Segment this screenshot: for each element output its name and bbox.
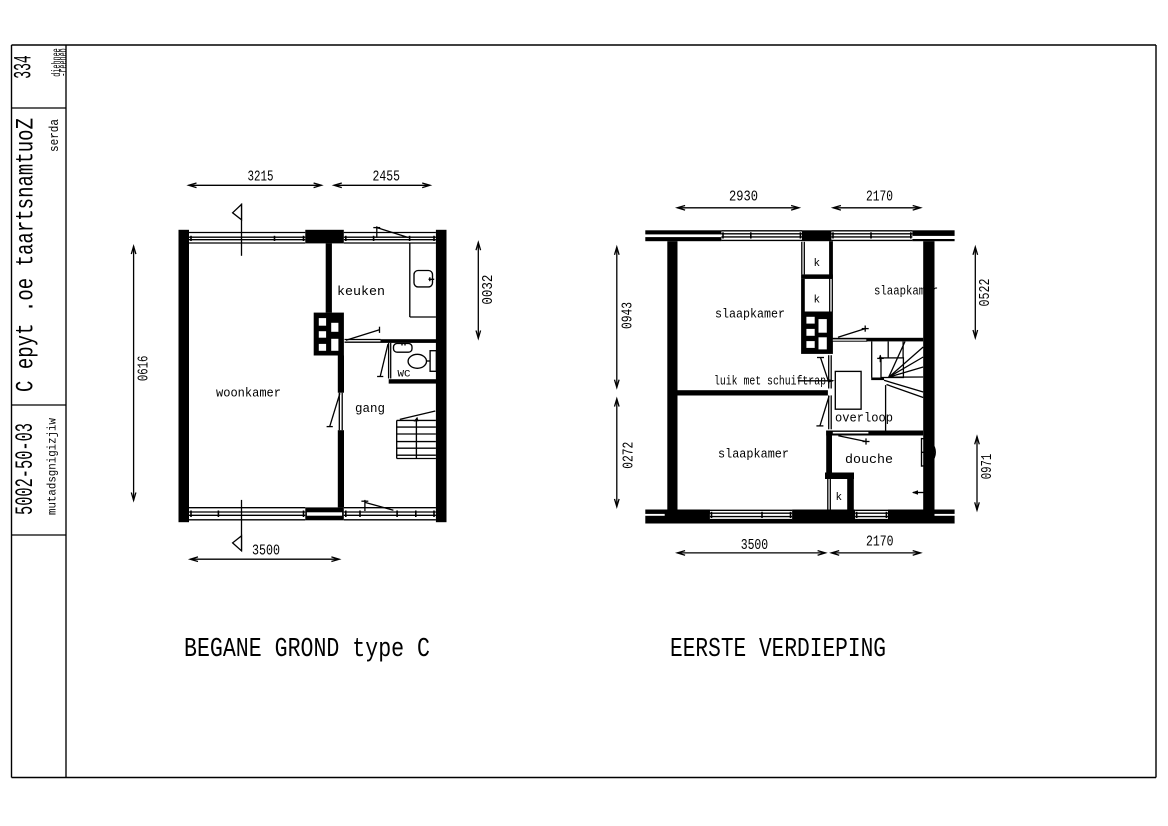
svg-text:3215: 3215 <box>248 168 274 185</box>
svg-text:k: k <box>814 295 821 307</box>
svg-text:k: k <box>814 258 821 270</box>
svg-text:0522: 0522 <box>977 279 994 307</box>
svg-text:3500: 3500 <box>741 537 769 554</box>
svg-text:douche: douche <box>845 452 893 467</box>
svg-text:BEGANE GROND type C: BEGANE GROND type C <box>184 635 430 665</box>
svg-text:2170: 2170 <box>866 189 893 206</box>
svg-text:0971: 0971 <box>979 454 996 480</box>
svg-text:0272: 0272 <box>621 442 638 469</box>
svg-text:woonkamer: woonkamer <box>216 386 281 401</box>
svg-text:2455: 2455 <box>373 168 401 185</box>
svg-text:keuken: keuken <box>337 284 385 299</box>
svg-text:gang: gang <box>355 401 385 416</box>
svg-text:2930: 2930 <box>729 189 758 206</box>
svg-text:334: 334 <box>10 55 39 79</box>
svg-text:WC: WC <box>398 370 411 381</box>
svg-text:slaapkamer: slaapkamer <box>715 307 785 322</box>
svg-text:slaapkamer: slaapkamer <box>874 284 938 299</box>
svg-text:overloop: overloop <box>835 411 893 426</box>
svg-text:3500: 3500 <box>252 542 280 559</box>
svg-text:luik met schuiftrap: luik met schuiftrap <box>714 374 826 389</box>
svg-text:5002-50-03: 5002-50-03 <box>11 423 40 515</box>
svg-text:0616: 0616 <box>136 356 153 382</box>
svg-text:0943: 0943 <box>620 302 637 329</box>
svg-text:slaapkamer: slaapkamer <box>718 447 789 462</box>
svg-text:serda: serda <box>48 119 62 152</box>
svg-text:2170: 2170 <box>866 534 894 551</box>
svg-text:k: k <box>836 492 843 504</box>
svg-text:EERSTE VERDIEPING: EERSTE VERDIEPING <box>670 635 886 665</box>
svg-text:0032: 0032 <box>480 275 497 305</box>
svg-text:C epyt .oe taartsnamtuoZ: C epyt .oe taartsnamtuoZ <box>12 118 41 392</box>
svg-text:mutadsgnigizjiw: mutadsgnigizjiw <box>47 418 60 515</box>
svg-text:diehnee: diehnee <box>51 48 64 77</box>
